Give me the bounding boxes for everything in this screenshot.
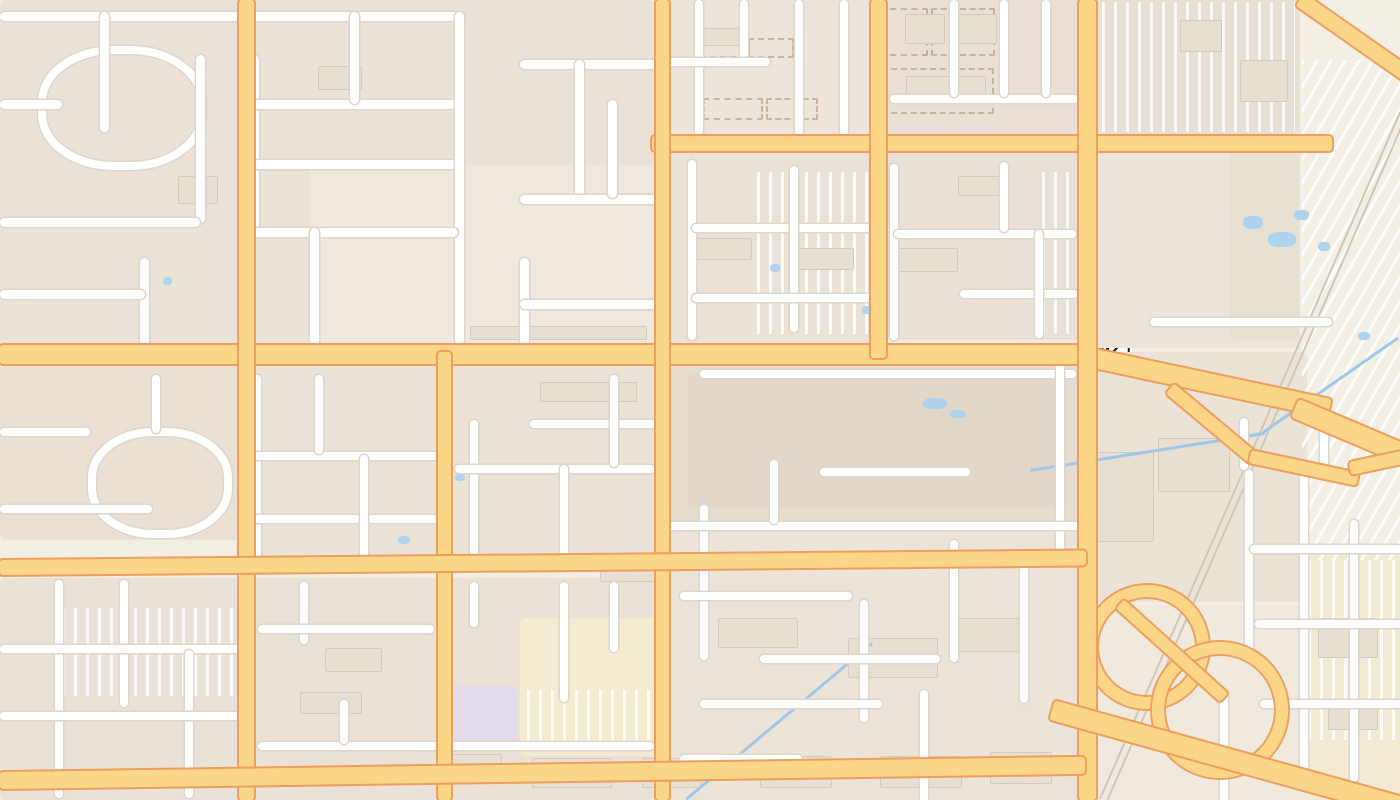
road-segment	[470, 582, 478, 627]
road-segment	[680, 592, 852, 600]
water-pool	[1358, 332, 1370, 340]
building	[905, 14, 945, 44]
road-segment	[455, 12, 464, 345]
water-pool	[770, 264, 780, 272]
road-segment	[692, 294, 872, 302]
major-road-segment	[1079, 0, 1096, 800]
road-segment	[790, 166, 798, 332]
major-road-segment	[0, 345, 1095, 364]
water-pool	[1318, 242, 1330, 251]
road-segment	[0, 428, 90, 436]
major-road-segment	[656, 0, 669, 800]
road-segment	[950, 0, 958, 97]
parking-stripes	[527, 690, 655, 748]
road-segment	[360, 455, 368, 563]
road-segment	[520, 195, 658, 204]
road-segment	[1250, 545, 1400, 553]
construction-outline	[766, 98, 818, 120]
building	[1090, 452, 1154, 542]
road-segment	[1035, 230, 1043, 338]
road-segment	[700, 560, 708, 660]
road-segment	[700, 700, 882, 708]
road-segment	[660, 522, 1080, 530]
construction-outline	[703, 98, 763, 120]
road-segment	[1000, 162, 1008, 232]
building	[470, 326, 647, 340]
road-segment	[0, 712, 245, 720]
road-segment	[310, 228, 319, 345]
road-segment	[0, 12, 465, 21]
building	[718, 618, 798, 648]
road-segment	[560, 582, 568, 702]
road-segment	[0, 645, 245, 653]
water-pool	[455, 474, 465, 481]
area-zone	[688, 374, 1066, 508]
area-zone	[443, 686, 517, 748]
building	[958, 618, 1026, 652]
road-segment	[470, 420, 478, 562]
road-segment	[890, 164, 898, 340]
road-segment	[315, 375, 323, 454]
road-segment	[300, 582, 308, 644]
road-loop	[88, 428, 232, 538]
road-segment	[920, 690, 928, 800]
road-segment	[520, 60, 658, 69]
area-zone	[310, 165, 655, 348]
major-road-segment	[239, 0, 254, 800]
water-pool	[1268, 232, 1296, 247]
road-segment	[100, 12, 109, 132]
road-segment	[350, 12, 359, 104]
major-road-segment	[438, 352, 451, 800]
building	[325, 648, 382, 672]
road-segment	[253, 160, 458, 169]
road-segment	[890, 95, 1078, 103]
road-segment	[795, 0, 803, 136]
road-segment	[258, 742, 654, 750]
road-segment	[1020, 555, 1028, 703]
construction-outline	[748, 38, 794, 58]
building	[798, 248, 854, 270]
road-segment	[253, 228, 458, 237]
road-segment	[610, 375, 618, 467]
road-segment	[668, 58, 770, 66]
major-road-segment	[652, 136, 1332, 151]
road-segment	[894, 230, 1076, 238]
road-segment	[770, 460, 778, 524]
road-segment	[1150, 318, 1332, 326]
water-pool	[1294, 210, 1309, 220]
road-segment	[1000, 0, 1008, 97]
road-segment	[1255, 620, 1400, 628]
road-segment	[1056, 362, 1064, 562]
road-segment	[0, 290, 145, 299]
major-road-segment	[871, 0, 886, 358]
road-segment	[740, 0, 748, 62]
road-segment	[610, 582, 618, 652]
road-segment	[0, 100, 62, 109]
road-segment	[140, 258, 149, 346]
water-pool	[1243, 216, 1263, 229]
building	[692, 238, 752, 260]
road-segment	[258, 625, 434, 633]
road-segment	[152, 375, 160, 433]
building	[898, 248, 958, 272]
road-segment	[700, 370, 1076, 378]
road-segment	[253, 515, 439, 523]
road-segment	[840, 0, 848, 136]
road-segment	[0, 505, 152, 513]
road-segment	[695, 0, 703, 136]
road-segment	[1350, 520, 1358, 782]
parking-stripes	[1042, 172, 1084, 334]
road-segment	[692, 224, 872, 232]
road-segment	[560, 465, 568, 563]
road-segment	[520, 300, 658, 309]
road-segment	[1042, 0, 1050, 97]
road-segment	[0, 218, 200, 227]
map-canvas[interactable]: West Viking Road Wynn Road South Cameron…	[0, 0, 1400, 800]
building	[1180, 20, 1222, 52]
road-segment	[55, 580, 63, 798]
building	[300, 692, 362, 714]
parking-stripes	[1302, 60, 1400, 560]
road-segment	[120, 580, 128, 707]
water-pool	[398, 536, 410, 544]
road-segment	[340, 700, 348, 744]
road-segment	[196, 55, 205, 223]
building	[1240, 60, 1288, 102]
water-pool	[923, 398, 947, 409]
road-segment	[960, 290, 1078, 298]
road-segment	[575, 60, 584, 198]
road-loop	[38, 46, 206, 170]
road-segment	[1245, 470, 1253, 652]
road-segment	[688, 160, 696, 340]
building	[540, 382, 637, 402]
road-segment	[760, 655, 940, 663]
road-segment	[820, 468, 970, 476]
water-pool	[163, 277, 172, 285]
road-segment	[455, 465, 655, 473]
road-segment	[608, 100, 617, 198]
water-pool	[950, 410, 966, 418]
road-segment	[253, 375, 261, 563]
road-segment	[530, 420, 656, 428]
road-segment	[253, 452, 439, 460]
